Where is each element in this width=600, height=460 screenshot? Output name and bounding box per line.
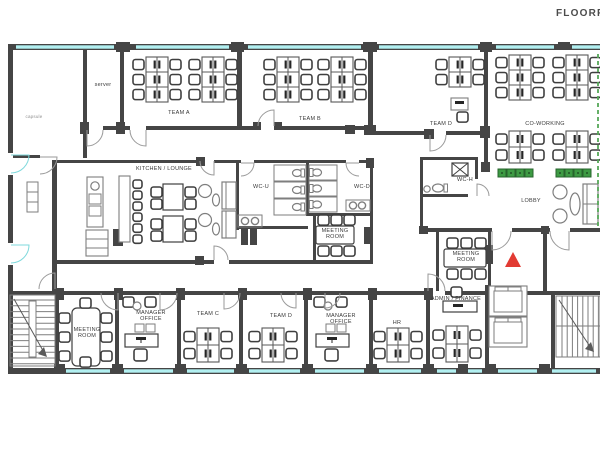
monitor-icon bbox=[457, 76, 459, 84]
chair-icon bbox=[301, 90, 312, 100]
monitor-icon bbox=[154, 91, 156, 99]
window bbox=[248, 45, 361, 48]
pillar bbox=[541, 226, 549, 234]
monitor-icon bbox=[285, 61, 287, 69]
side-table bbox=[133, 302, 141, 310]
wall bbox=[485, 285, 489, 370]
wall bbox=[83, 44, 87, 158]
sofa-icon bbox=[222, 182, 236, 209]
chair-icon bbox=[461, 238, 472, 248]
door-opening bbox=[130, 126, 146, 130]
chair-icon bbox=[473, 60, 484, 70]
chair-icon bbox=[151, 199, 162, 209]
monitor-icon bbox=[205, 333, 207, 341]
toilet-icon bbox=[301, 203, 305, 211]
pillar bbox=[363, 42, 377, 52]
chair-icon bbox=[101, 351, 112, 361]
monitor-icon bbox=[343, 91, 345, 99]
chair-icon bbox=[553, 58, 564, 68]
pillar bbox=[250, 229, 257, 245]
door-arc bbox=[214, 246, 228, 260]
monitor-icon bbox=[270, 350, 272, 358]
chair-icon bbox=[151, 231, 162, 241]
chair-icon bbox=[355, 75, 366, 85]
monitor-icon bbox=[458, 331, 460, 339]
monitor-icon bbox=[521, 151, 523, 159]
floorplan-drawing bbox=[0, 0, 600, 460]
window bbox=[468, 369, 482, 372]
wall bbox=[368, 44, 373, 132]
monitor-icon bbox=[274, 350, 276, 358]
chair-icon bbox=[475, 269, 486, 279]
chair-icon bbox=[133, 191, 142, 199]
toilet-icon bbox=[310, 201, 314, 209]
chair-icon bbox=[133, 60, 144, 70]
chair-icon bbox=[145, 297, 156, 307]
chair-icon bbox=[134, 349, 147, 361]
chair-icon bbox=[185, 219, 196, 229]
chair-icon bbox=[344, 215, 355, 225]
chair-icon bbox=[189, 75, 200, 85]
plant-icon bbox=[586, 172, 588, 174]
wall bbox=[239, 291, 243, 370]
monitor-icon bbox=[274, 333, 276, 341]
drawer-unit bbox=[146, 324, 155, 332]
chair-icon bbox=[133, 90, 144, 100]
chair-icon bbox=[264, 90, 275, 100]
chair-icon bbox=[189, 60, 200, 70]
pillar bbox=[364, 125, 376, 135]
pillar bbox=[302, 364, 313, 374]
drawer-unit bbox=[326, 324, 335, 332]
chair-icon bbox=[318, 60, 329, 70]
chair-icon bbox=[301, 60, 312, 70]
meeting-table bbox=[444, 249, 486, 267]
door-arc bbox=[160, 293, 177, 310]
wall bbox=[120, 44, 124, 128]
pillar bbox=[345, 125, 355, 134]
chair-icon bbox=[553, 150, 564, 160]
wall bbox=[475, 157, 478, 179]
monitor-icon bbox=[270, 333, 272, 341]
toilet-icon bbox=[444, 184, 448, 192]
chair-icon bbox=[461, 269, 472, 279]
chair-icon bbox=[325, 349, 338, 361]
stair-arrow bbox=[585, 342, 594, 352]
pillar bbox=[481, 162, 490, 172]
chair-icon bbox=[318, 215, 329, 225]
chair-icon bbox=[344, 246, 355, 256]
window bbox=[379, 369, 421, 372]
pillar bbox=[175, 364, 186, 374]
chair-icon bbox=[447, 269, 458, 279]
monitor-icon bbox=[517, 74, 519, 82]
chair-icon bbox=[436, 60, 447, 70]
pillar bbox=[366, 364, 377, 374]
chair-icon bbox=[170, 75, 181, 85]
pillar bbox=[231, 42, 244, 52]
monitor-icon bbox=[289, 91, 291, 99]
chair-icon bbox=[185, 231, 196, 241]
plant-icon bbox=[501, 172, 503, 174]
monitor-icon bbox=[521, 74, 523, 82]
chair-icon bbox=[470, 330, 481, 340]
door-opening bbox=[8, 153, 13, 175]
door-arc bbox=[87, 130, 103, 146]
chair-icon bbox=[170, 90, 181, 100]
door-arc bbox=[550, 231, 569, 250]
monitor-icon bbox=[158, 76, 160, 84]
monitor-icon bbox=[154, 61, 156, 69]
sink-icon bbox=[424, 186, 430, 192]
door-opening bbox=[87, 126, 103, 130]
monitor-icon bbox=[214, 61, 216, 69]
pillar bbox=[480, 42, 492, 52]
bar-counter bbox=[119, 176, 130, 242]
monitor-icon bbox=[574, 135, 576, 143]
chair-icon bbox=[433, 330, 444, 340]
pillar bbox=[419, 226, 428, 234]
chair-icon bbox=[475, 238, 486, 248]
door-arc bbox=[477, 184, 489, 196]
monitor-icon bbox=[214, 91, 216, 99]
chair-icon bbox=[286, 349, 297, 359]
pillar bbox=[274, 122, 282, 130]
pillar bbox=[195, 256, 204, 265]
door-opening bbox=[492, 228, 512, 232]
chair-icon bbox=[184, 332, 195, 342]
chair-icon bbox=[331, 215, 342, 225]
chair-icon bbox=[226, 75, 237, 85]
pillar bbox=[423, 364, 434, 374]
monitor-icon bbox=[209, 350, 211, 358]
monitor-icon bbox=[343, 76, 345, 84]
chair-icon bbox=[533, 58, 544, 68]
chair-icon bbox=[226, 60, 237, 70]
door-opening bbox=[8, 243, 13, 265]
pillar bbox=[303, 288, 312, 300]
monitor-icon bbox=[395, 350, 397, 358]
pillar bbox=[253, 122, 261, 130]
wall bbox=[237, 44, 242, 128]
monitor-icon bbox=[327, 337, 337, 340]
toilet-icon bbox=[310, 169, 314, 177]
chair-icon bbox=[133, 202, 142, 210]
chair-icon bbox=[318, 75, 329, 85]
monitor-icon bbox=[578, 151, 580, 159]
monitor-icon bbox=[457, 61, 459, 69]
pillar bbox=[241, 229, 248, 245]
monitor-icon bbox=[521, 59, 523, 67]
meeting-table bbox=[316, 226, 354, 244]
floorplan-title: FLOORPLAN bbox=[556, 8, 600, 19]
window bbox=[187, 369, 234, 372]
wall bbox=[85, 126, 372, 130]
monitor-icon bbox=[158, 61, 160, 69]
chair-icon bbox=[249, 349, 260, 359]
monitor-icon bbox=[158, 91, 160, 99]
chair-icon bbox=[264, 60, 275, 70]
toilet-icon bbox=[313, 185, 322, 192]
chair-icon bbox=[170, 60, 181, 70]
chair-icon bbox=[553, 73, 564, 83]
pillar bbox=[236, 364, 247, 374]
door-opening bbox=[214, 260, 229, 264]
chair-icon bbox=[101, 332, 112, 342]
chair-icon bbox=[411, 349, 422, 359]
toilet-icon bbox=[313, 201, 322, 208]
monitor-icon bbox=[399, 333, 401, 341]
chair-icon bbox=[151, 219, 162, 229]
wall bbox=[177, 291, 181, 370]
chair-icon bbox=[286, 332, 297, 342]
monitor-icon bbox=[578, 74, 580, 82]
chair-icon bbox=[451, 287, 462, 297]
chair-icon bbox=[318, 90, 329, 100]
armchair-icon bbox=[199, 185, 212, 198]
window bbox=[437, 369, 456, 372]
armchair-icon bbox=[199, 214, 212, 227]
toilet-icon bbox=[293, 204, 302, 211]
pillar bbox=[55, 288, 64, 300]
monitor-icon bbox=[210, 76, 212, 84]
chair-icon bbox=[496, 88, 507, 98]
monitor-icon bbox=[461, 76, 463, 84]
toilet-icon bbox=[313, 169, 322, 176]
monitor-icon bbox=[214, 76, 216, 84]
sofa-icon bbox=[222, 211, 236, 238]
wall bbox=[369, 291, 373, 370]
armchair-icon bbox=[553, 185, 567, 199]
drawer-unit bbox=[135, 324, 144, 332]
chair-icon bbox=[301, 75, 312, 85]
chair-icon bbox=[221, 332, 232, 342]
monitor-icon bbox=[285, 76, 287, 84]
chair-icon bbox=[533, 73, 544, 83]
door-arc bbox=[224, 293, 240, 309]
monitor-icon bbox=[136, 337, 146, 340]
window bbox=[66, 369, 110, 372]
chair-icon bbox=[318, 246, 329, 256]
chair-icon bbox=[533, 88, 544, 98]
chair-icon bbox=[314, 297, 325, 307]
monitor-icon bbox=[399, 350, 401, 358]
monitor-icon bbox=[458, 349, 460, 357]
monitor-icon bbox=[578, 89, 580, 97]
monitor-icon bbox=[339, 91, 341, 99]
chair-icon bbox=[184, 349, 195, 359]
toilet-icon bbox=[310, 185, 314, 193]
monitor-icon bbox=[517, 135, 519, 143]
monitor-icon bbox=[210, 91, 212, 99]
chair-icon bbox=[59, 313, 70, 323]
chair-icon bbox=[433, 348, 444, 358]
monitor-icon bbox=[339, 76, 341, 84]
monitor-icon bbox=[517, 151, 519, 159]
dining-table bbox=[163, 216, 183, 242]
plant-icon bbox=[528, 172, 530, 174]
door-arc bbox=[11, 245, 29, 263]
sink-icon bbox=[91, 182, 99, 190]
chair-icon bbox=[457, 112, 468, 122]
monitor-icon bbox=[209, 333, 211, 341]
armchair-icon bbox=[553, 209, 567, 223]
chair-icon bbox=[496, 150, 507, 160]
pillar bbox=[364, 227, 373, 244]
window bbox=[315, 369, 364, 372]
chair-icon bbox=[80, 357, 91, 367]
pillar bbox=[116, 42, 130, 52]
pillar bbox=[112, 364, 123, 374]
wall bbox=[420, 157, 478, 160]
door-arc bbox=[492, 231, 511, 250]
window bbox=[552, 369, 596, 372]
window bbox=[496, 45, 554, 48]
monitor-icon bbox=[454, 331, 456, 339]
pillar bbox=[368, 288, 377, 300]
pillar bbox=[485, 364, 496, 374]
window bbox=[124, 369, 173, 372]
plant-icon bbox=[510, 172, 512, 174]
entrance-arrow bbox=[505, 252, 521, 267]
monitor-icon bbox=[453, 304, 463, 307]
wall bbox=[543, 228, 547, 293]
chair-icon bbox=[374, 332, 385, 342]
chair-icon bbox=[101, 313, 112, 323]
monitor-icon bbox=[574, 59, 576, 67]
wall bbox=[426, 291, 430, 370]
chair-icon bbox=[226, 90, 237, 100]
plant-icon bbox=[577, 172, 579, 174]
chair-icon bbox=[496, 134, 507, 144]
plant-icon bbox=[559, 172, 561, 174]
toilet-icon bbox=[293, 187, 302, 194]
monitor-icon bbox=[574, 74, 576, 82]
chair-icon bbox=[59, 351, 70, 361]
chair-icon bbox=[123, 297, 134, 307]
chair-icon bbox=[133, 75, 144, 85]
pillar bbox=[116, 122, 125, 134]
chair-icon bbox=[496, 58, 507, 68]
chair-icon bbox=[411, 332, 422, 342]
side-table bbox=[213, 194, 220, 206]
monitor-icon bbox=[574, 151, 576, 159]
sink-icon bbox=[251, 217, 258, 224]
pillar bbox=[539, 364, 550, 374]
wall bbox=[420, 194, 468, 197]
chair-icon bbox=[374, 349, 385, 359]
pillar bbox=[80, 122, 89, 134]
door-arc bbox=[281, 293, 296, 308]
chair-icon bbox=[331, 246, 342, 256]
stair-rail bbox=[29, 301, 36, 357]
window bbox=[136, 45, 229, 48]
chair-icon bbox=[533, 150, 544, 160]
chair-icon bbox=[80, 298, 91, 308]
chair-icon bbox=[151, 187, 162, 197]
drawer-unit bbox=[337, 324, 346, 332]
monitor-icon bbox=[289, 61, 291, 69]
plant-icon bbox=[519, 172, 521, 174]
sink-icon bbox=[349, 202, 356, 209]
chair-icon bbox=[133, 224, 142, 232]
window bbox=[16, 45, 114, 48]
monitor-icon bbox=[210, 61, 212, 69]
monitor-icon bbox=[578, 59, 580, 67]
toilet-icon bbox=[301, 169, 305, 177]
monitor-icon bbox=[521, 135, 523, 143]
wall bbox=[436, 228, 439, 293]
chair-icon bbox=[553, 134, 564, 144]
plant-icon bbox=[568, 172, 570, 174]
monitor-icon bbox=[574, 89, 576, 97]
chair-icon bbox=[336, 297, 347, 307]
wall bbox=[551, 291, 555, 370]
wall bbox=[304, 291, 308, 370]
chair-icon bbox=[496, 73, 507, 83]
chair-icon bbox=[185, 199, 196, 209]
chair-icon bbox=[553, 88, 564, 98]
monitor-icon bbox=[154, 76, 156, 84]
monitor-icon bbox=[395, 333, 397, 341]
dining-table bbox=[163, 184, 183, 210]
pillar bbox=[558, 42, 570, 50]
toilet-icon bbox=[301, 186, 305, 194]
chair-icon bbox=[221, 349, 232, 359]
chair-icon bbox=[355, 60, 366, 70]
chair-icon bbox=[533, 134, 544, 144]
door-arc bbox=[130, 130, 146, 146]
floorplan-page: FLOORPLAN capsule server TEAM A TEAM B T… bbox=[0, 0, 600, 460]
monitor-icon bbox=[289, 76, 291, 84]
cabinet bbox=[86, 230, 108, 256]
monitor-icon bbox=[521, 89, 523, 97]
monitor-icon bbox=[517, 89, 519, 97]
window bbox=[498, 369, 537, 372]
coffee-table bbox=[570, 193, 580, 215]
monitor-icon bbox=[205, 350, 207, 358]
toilet-icon bbox=[433, 184, 444, 192]
monitor-icon bbox=[461, 61, 463, 69]
toilet-icon bbox=[293, 170, 302, 177]
side-table bbox=[213, 223, 220, 235]
chair-icon bbox=[185, 187, 196, 197]
window bbox=[379, 45, 478, 48]
monitor-icon bbox=[285, 91, 287, 99]
sink-icon bbox=[358, 202, 365, 209]
chair-icon bbox=[133, 213, 142, 221]
printer-icon bbox=[455, 101, 464, 104]
chair-icon bbox=[264, 75, 275, 85]
pillar bbox=[480, 126, 490, 138]
chair-icon bbox=[355, 90, 366, 100]
monitor-icon bbox=[578, 135, 580, 143]
chair-icon bbox=[249, 332, 260, 342]
window bbox=[572, 45, 600, 48]
locker-cabinet bbox=[27, 182, 38, 212]
sink-icon bbox=[241, 217, 248, 224]
pillar bbox=[424, 129, 434, 139]
pillar bbox=[458, 364, 468, 374]
monitor-icon bbox=[339, 61, 341, 69]
monitor-icon bbox=[454, 349, 456, 357]
chair-icon bbox=[447, 238, 458, 248]
window bbox=[249, 369, 300, 372]
monitor-icon bbox=[343, 61, 345, 69]
door-opening bbox=[550, 228, 570, 232]
chair-icon bbox=[470, 348, 481, 358]
chair-icon bbox=[133, 180, 142, 188]
